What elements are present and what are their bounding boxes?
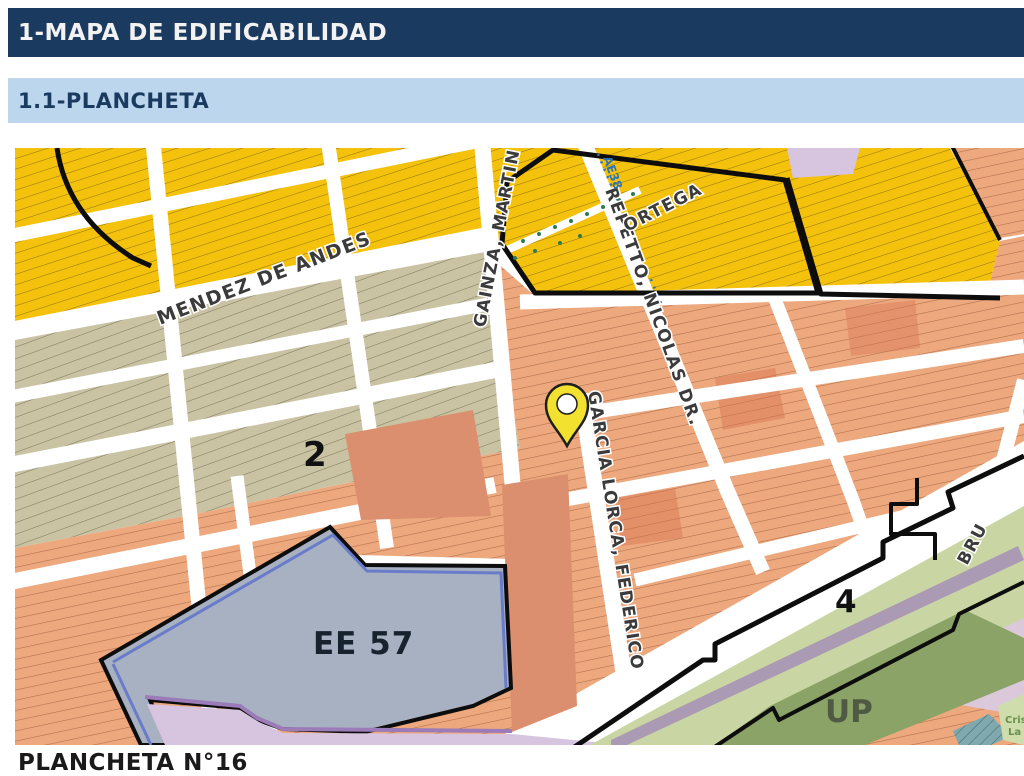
criso-label-line2: La bbox=[1008, 727, 1021, 738]
map-svg: MENDEZ DE ANDES GAINZA, MARTIN REPETTO, … bbox=[15, 148, 1024, 745]
subheader-bar: 1.1-PLANCHETA bbox=[8, 78, 1024, 123]
page-title: 1-MAPA DE EDIFICABILIDAD bbox=[8, 20, 387, 46]
map-caption: PLANCHETA N°16 bbox=[18, 750, 248, 776]
section-title: 1.1-PLANCHETA bbox=[8, 89, 209, 113]
zone4-label: 4 bbox=[835, 584, 857, 620]
header-bar: 1-MAPA DE EDIFICABILIDAD bbox=[8, 8, 1024, 57]
ee57-label: EE 57 bbox=[313, 626, 414, 662]
edificability-map: MENDEZ DE ANDES GAINZA, MARTIN REPETTO, … bbox=[15, 148, 1024, 745]
criso-label-line1: Crisó bbox=[1005, 714, 1024, 726]
lavender-top-block bbox=[787, 148, 860, 178]
plain-block-central bbox=[502, 474, 577, 732]
zone2-label: 2 bbox=[303, 435, 327, 475]
page: { "header": { "title": "1-MAPA DE EDIFIC… bbox=[0, 0, 1024, 768]
up-label: UP bbox=[825, 694, 873, 730]
